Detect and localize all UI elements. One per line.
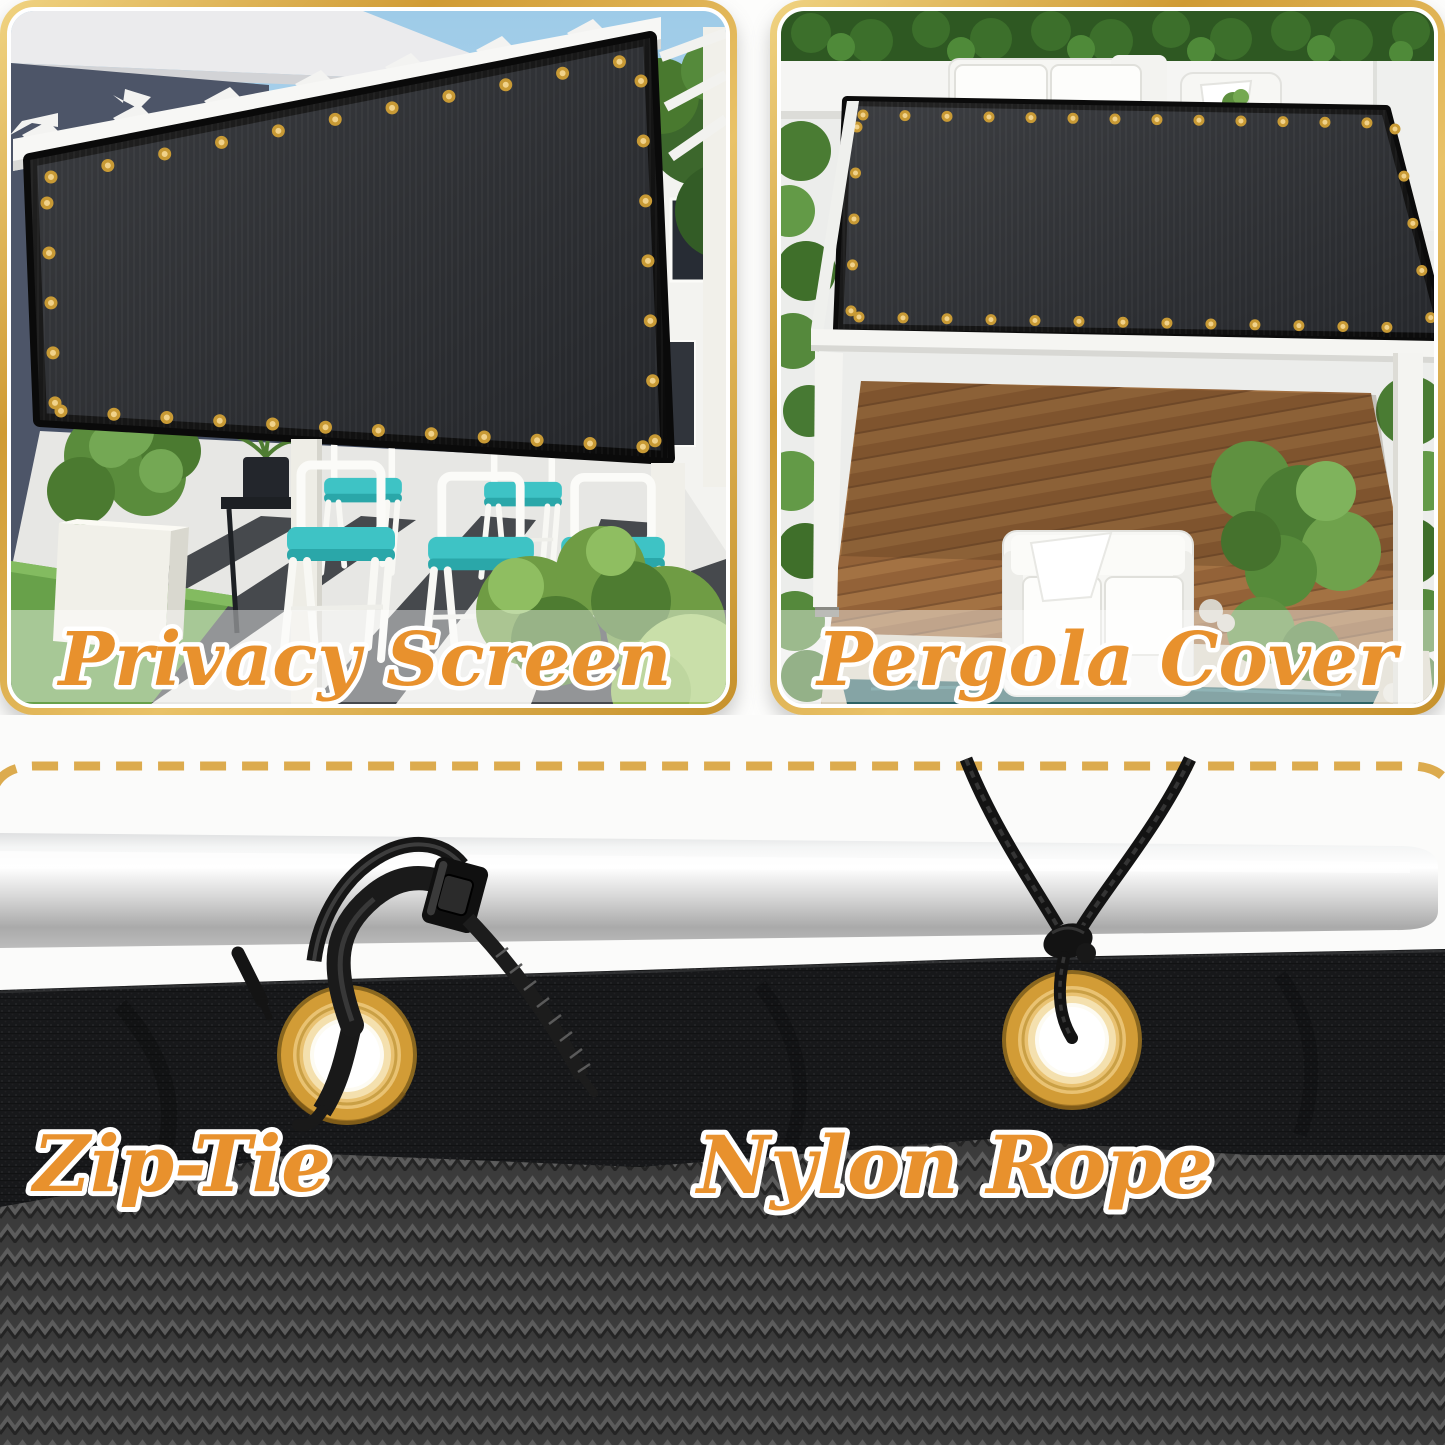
pergola-cover-panel: Pergola Cover	[770, 0, 1445, 715]
hedge	[781, 11, 1434, 65]
installation-detail-section: Zip-Tie Nylon Rope	[0, 715, 1445, 1445]
zip-tie-label: Zip-Tie	[30, 1119, 331, 1210]
privacy-screen-panel: Privacy Screen	[0, 0, 737, 715]
product-collage: Privacy Screen	[0, 0, 1445, 1445]
pergola-mesh-cover	[838, 101, 1434, 338]
pergola-cover-scene: Pergola Cover	[781, 11, 1434, 704]
pergola-cover-label: Pergola Cover	[815, 617, 1402, 703]
privacy-screen-photo: Privacy Screen	[11, 11, 726, 704]
privacy-screen-frame: Privacy Screen	[7, 7, 730, 708]
pergola-cover-frame: Pergola Cover	[777, 7, 1438, 708]
metal-pole	[0, 833, 1438, 948]
privacy-screen-scene: Privacy Screen	[11, 11, 726, 704]
pergola-cover-photo: Pergola Cover	[781, 11, 1434, 704]
nylon-rope-label: Nylon Rope	[694, 1118, 1213, 1212]
privacy-screen-label: Privacy Screen	[57, 617, 672, 703]
